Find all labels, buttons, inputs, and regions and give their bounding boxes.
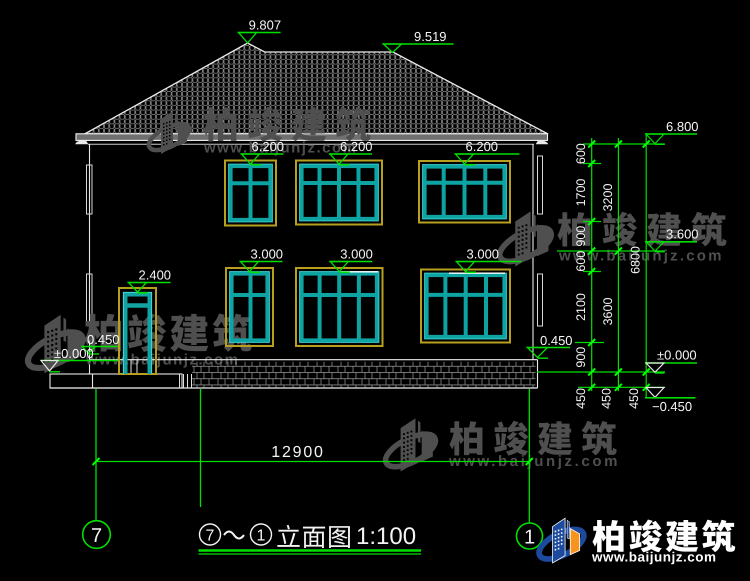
svg-text:2.400: 2.400	[139, 267, 172, 282]
svg-text:600: 600	[574, 251, 588, 272]
svg-text:450: 450	[574, 388, 588, 409]
svg-text:0.450: 0.450	[540, 333, 573, 348]
svg-text:900: 900	[574, 226, 588, 247]
svg-text:7: 7	[206, 528, 215, 545]
svg-text:3200: 3200	[601, 184, 615, 212]
svg-text:900: 900	[574, 347, 588, 368]
svg-text:±0.000: ±0.000	[54, 346, 94, 361]
svg-text:1: 1	[524, 527, 535, 549]
svg-text:9.519: 9.519	[414, 29, 447, 44]
svg-text:450: 450	[599, 388, 613, 409]
svg-text:www.baijunjz.com: www.baijunjz.com	[591, 550, 717, 565]
svg-text:6800: 6800	[629, 246, 643, 274]
svg-text:12900: 12900	[271, 444, 325, 461]
svg-text:6.200: 6.200	[466, 139, 499, 154]
svg-text:1:100: 1:100	[356, 523, 416, 550]
svg-text:3.000: 3.000	[251, 246, 284, 261]
svg-text:3600: 3600	[601, 298, 615, 326]
svg-text:6.200: 6.200	[340, 139, 373, 154]
svg-text:450: 450	[627, 388, 641, 409]
svg-text:1700: 1700	[574, 179, 588, 207]
svg-text:3.000: 3.000	[340, 246, 373, 261]
svg-text:3.600: 3.600	[666, 227, 699, 242]
svg-text:2100: 2100	[574, 293, 588, 321]
svg-text:±0.000: ±0.000	[657, 348, 697, 363]
svg-text:1: 1	[257, 528, 266, 545]
svg-text:6.800: 6.800	[666, 119, 699, 134]
svg-text:3.000: 3.000	[467, 246, 500, 261]
svg-text:−0.450: −0.450	[652, 399, 692, 414]
svg-text:0.450: 0.450	[87, 332, 120, 347]
svg-text:6.200: 6.200	[252, 139, 285, 154]
svg-text:9.807: 9.807	[249, 17, 282, 32]
svg-text:600: 600	[574, 143, 588, 164]
svg-text:7: 7	[91, 525, 102, 547]
